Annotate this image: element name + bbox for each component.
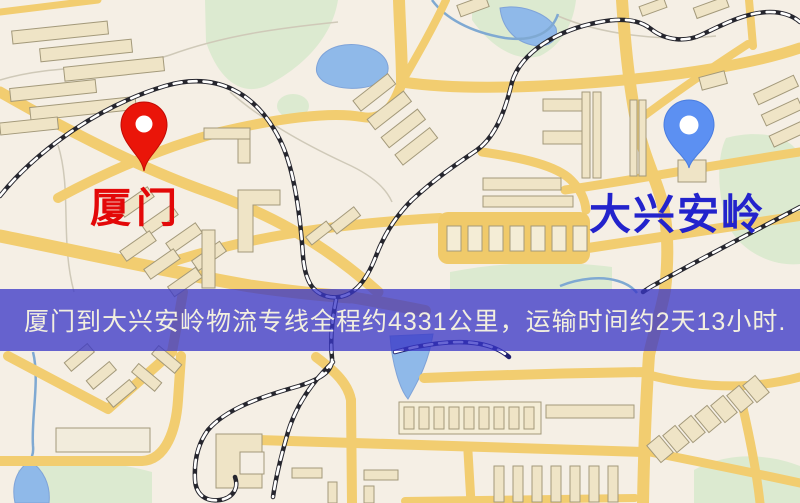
- map-courtyard-block: [438, 212, 590, 264]
- origin-label: 厦门: [90, 174, 182, 234]
- route-info-text: 厦门到大兴安岭物流专线全程约4331公里，运输时间约2天13小时.: [0, 302, 786, 338]
- map-rowhouse-block: [399, 402, 541, 434]
- map-canvas: 厦门 大兴安岭 厦门到大兴安岭物流专线全程约4331公里，运输时间约2天13小时…: [0, 0, 800, 503]
- map-graphics: [0, 0, 800, 503]
- destination-label: 大兴安岭: [589, 181, 765, 242]
- route-info-banner: 厦门到大兴安岭物流专线全程约4331公里，运输时间约2天13小时.: [0, 289, 800, 351]
